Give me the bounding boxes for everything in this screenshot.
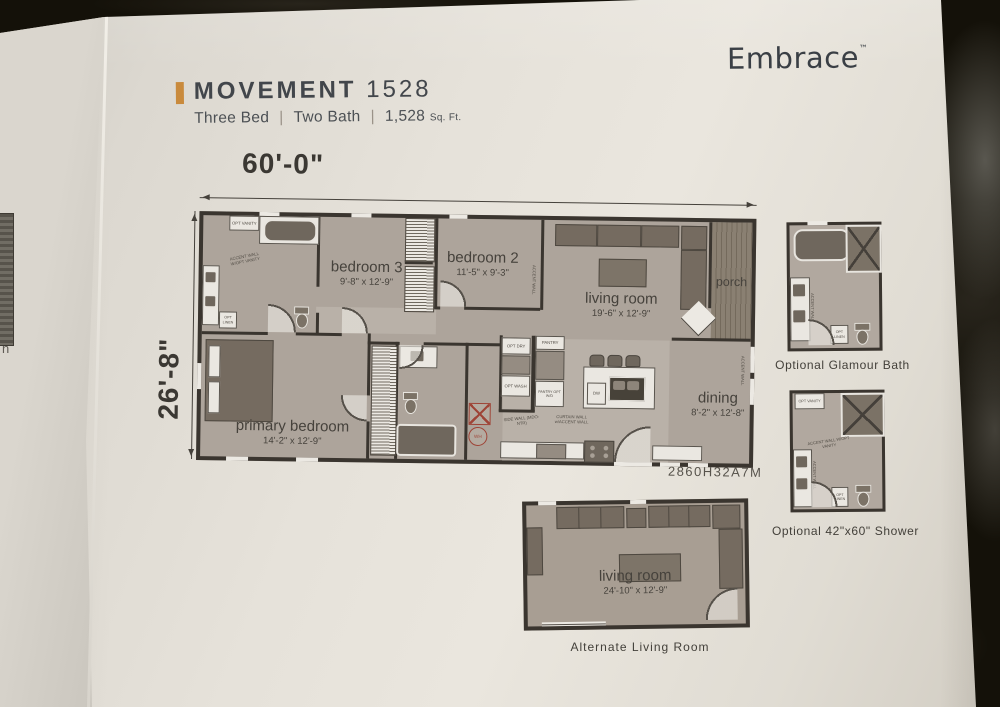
room-name: living room <box>599 567 672 586</box>
entry-door-swing <box>614 426 650 462</box>
sofa <box>600 506 624 528</box>
room-dims: 14'-2" x 12'-9" <box>236 435 350 448</box>
wall-segment <box>499 409 535 413</box>
door-swing <box>811 481 837 507</box>
optional-shower-caption: Optional 42"x60" Shower <box>768 524 923 538</box>
primary-closet <box>370 345 398 455</box>
pantry-shelving <box>535 351 564 380</box>
shower-42x60 <box>840 393 884 437</box>
washer-symbol <box>469 403 491 425</box>
sofa <box>668 505 690 527</box>
trademark-symbol: ™ <box>859 44 869 54</box>
adjacent-page-edge <box>0 0 104 707</box>
width-dimension-label: 60'-0" <box>242 148 324 181</box>
accent-wall-note: ACCENT WALL <box>531 260 537 300</box>
model-number: 2860H32A7M <box>668 464 763 480</box>
door-swing <box>399 345 423 369</box>
shower <box>845 225 881 273</box>
sectional-corner <box>712 505 740 529</box>
curtain-wall-note: CURTAIN WALL w/ACCENT WALL <box>549 414 595 425</box>
wall-segment <box>464 343 469 460</box>
pillow <box>208 345 220 377</box>
room-label-dining: dining8'-2" x 12'-8" <box>691 389 745 419</box>
door-swing <box>268 304 296 332</box>
adjacent-page-plan-fragment <box>0 213 14 346</box>
opt-linen-box: OPT LINEN <box>219 311 237 328</box>
accent-wall-note: ACCENT WALL <box>740 351 746 391</box>
optional-shower-inset: OPT VANITY ACCENT WALL W/OPT VANITY ACCE… <box>789 390 885 513</box>
room-label-alt-living: living room24'-10" x 12'-9" <box>599 567 672 597</box>
water-heater-symbol: WH <box>468 427 487 446</box>
bar-stool <box>625 355 640 367</box>
bar-stool <box>589 355 604 367</box>
toilet-bowl <box>856 330 868 345</box>
pantry-opt-wd-box: PANTRY OPT W/D <box>535 381 564 407</box>
wall-segment <box>540 220 544 310</box>
sink <box>204 271 216 283</box>
side-chair <box>526 527 543 575</box>
sink <box>795 455 808 468</box>
title-number: 1528 <box>366 75 432 103</box>
room-dims: 19'-6" x 12'-9" <box>585 308 658 320</box>
armchair <box>626 508 646 528</box>
opt-linen-label: OPT LINEN <box>220 316 236 325</box>
room-dims: 11'-5" x 9'-3" <box>447 267 519 279</box>
opt-vanity-box: OPT VANITY <box>794 393 824 409</box>
window <box>449 215 467 219</box>
sectional-corner <box>681 226 707 250</box>
room-label-bedroom2: bedroom 211'-5" x 9'-3" <box>447 249 519 279</box>
sofa <box>555 224 597 247</box>
sofa <box>556 507 580 529</box>
embrace-logo: Embrace™ <box>727 40 869 75</box>
sink-basin <box>613 381 625 390</box>
sofa <box>648 506 670 528</box>
opt-washer-box: OPT WASH <box>501 375 530 396</box>
room-name: dining <box>691 389 744 408</box>
freestanding-tub <box>793 229 849 261</box>
kitchen-counter <box>652 445 702 461</box>
pillow <box>208 381 220 413</box>
title-name: MOVEMENT <box>194 76 357 105</box>
room-name: porch <box>716 275 747 290</box>
sofa <box>688 505 710 527</box>
opt-dryer-box: OPT DRY <box>502 337 531 354</box>
door-swing <box>808 319 834 345</box>
sofa <box>641 225 679 248</box>
wall-segment <box>434 306 440 309</box>
window <box>630 500 646 504</box>
opt-vanity-label: OPT VANITY <box>232 221 257 226</box>
pantry-opt-wd-label: PANTRY OPT W/D <box>536 389 563 398</box>
wall-segment <box>464 307 540 311</box>
wall-segment <box>296 332 342 336</box>
accent-wall-note: ACCENT WALL W/OPT VANITY <box>222 250 267 268</box>
spec-separator: | <box>279 109 284 126</box>
window <box>750 379 754 405</box>
window <box>197 363 201 389</box>
wall-segment <box>202 331 268 335</box>
door-swing <box>705 588 737 620</box>
sink <box>792 309 806 323</box>
room-dims: 24'-10" x 12'-9" <box>599 585 672 597</box>
wall-segment <box>366 421 370 458</box>
bedroom3-closet <box>404 266 435 312</box>
spec-separator: | <box>370 108 375 125</box>
glamour-bath-inset: ACCENT WALL OPT LINEN <box>786 222 882 352</box>
room-label-living: living room19'-6" x 12'-9" <box>585 290 658 320</box>
room-name: bedroom 3 <box>331 258 403 277</box>
entry-door-opening <box>614 462 652 467</box>
gold-accent-bar <box>176 82 184 104</box>
opt-vanity-label: OPT VANITY <box>798 399 820 404</box>
main-floor-plan: OPT VANITY ACCENT WALL W/OPT VANITY OPT … <box>196 211 756 468</box>
depth-dimension-label: 26'-8" <box>152 323 186 433</box>
adjacent-page-letter: n <box>2 341 9 356</box>
opt-wash-label: OPT WASH <box>504 383 526 388</box>
dishwasher-box: DW <box>587 383 606 405</box>
window <box>750 347 754 373</box>
main-floor-plan-zone: 60'-0" 26'-8" <box>148 150 813 489</box>
window <box>351 213 371 217</box>
primary-tub-shower <box>396 424 456 457</box>
window <box>538 501 556 505</box>
pantry-label: PANTRY <box>542 340 559 345</box>
photo-of-brochure-on-granite: n Embrace™ MOVEMENT 1528 Three Bed|Two B… <box>0 0 1000 707</box>
spec-sqft: 1,528 <box>385 107 425 124</box>
room-label-bedroom3: bedroom 39'-8" x 12'-9" <box>331 258 403 288</box>
door-swing <box>342 307 368 333</box>
pantry-box: PANTRY <box>536 336 565 350</box>
spec-bath: Two Bath <box>293 108 360 126</box>
bedroom2-closet <box>405 218 436 262</box>
room-name: bedroom 2 <box>447 249 519 268</box>
room-dims: 9'-8" x 12'-9" <box>331 276 403 288</box>
sink <box>795 477 808 490</box>
sqft-unit: Sq. Ft. <box>430 112 462 123</box>
window <box>226 456 248 460</box>
room-name: living room <box>585 290 658 309</box>
sink <box>204 295 216 307</box>
window <box>807 221 827 225</box>
door-swing <box>440 280 466 306</box>
opt-vanity-box: OPT VANITY <box>229 215 259 230</box>
plan-header: MOVEMENT 1528 Three Bed|Two Bath|1,528 S… <box>176 72 577 136</box>
toilet-bowl <box>405 399 417 414</box>
sink <box>792 283 806 297</box>
width-dimension-line <box>200 197 757 206</box>
room-label-primary: primary bedroom14'-2" x 12'-9" <box>236 417 350 448</box>
bar-stool <box>607 355 622 367</box>
utility-cabinet <box>501 355 530 374</box>
dishwasher-label: DW <box>593 391 600 396</box>
opt-dry-label: OPT DRY <box>507 343 526 348</box>
room-label-porch: porch <box>716 275 747 290</box>
depth-dimension-line <box>191 211 195 459</box>
sink-basin <box>627 381 639 390</box>
room-dims: 8'-2" x 12'-8" <box>691 407 744 419</box>
sectional-chaise <box>719 529 744 589</box>
plan-specs: Three Bed|Two Bath|1,528 Sq. Ft. <box>194 107 461 128</box>
bathtub <box>263 219 317 243</box>
glamour-bath-caption: Optional Glamour Bath <box>770 358 915 372</box>
coffee-table <box>598 259 646 288</box>
range <box>584 440 614 462</box>
spec-bed: Three Bed <box>194 109 269 127</box>
alternate-living-inset: living room24'-10" x 12'-9" <box>522 498 750 630</box>
page-title: MOVEMENT 1528 <box>194 75 432 105</box>
water-heater-label: WH <box>474 434 482 440</box>
sofa <box>578 506 602 528</box>
refrigerator <box>536 444 566 459</box>
toilet-bowl <box>296 313 308 328</box>
brochure-page: n Embrace™ MOVEMENT 1528 Three Bed|Two B… <box>0 0 1000 707</box>
toilet-bowl <box>857 492 869 507</box>
alternate-living-caption: Alternate Living Room <box>566 640 714 654</box>
brand-name: Embrace <box>727 40 859 75</box>
wall-segment <box>316 313 319 335</box>
wall-segment <box>672 338 751 342</box>
sofa <box>597 225 641 248</box>
sectional-chaise <box>680 250 707 310</box>
room-name: primary bedroom <box>236 417 350 437</box>
window <box>296 457 318 461</box>
